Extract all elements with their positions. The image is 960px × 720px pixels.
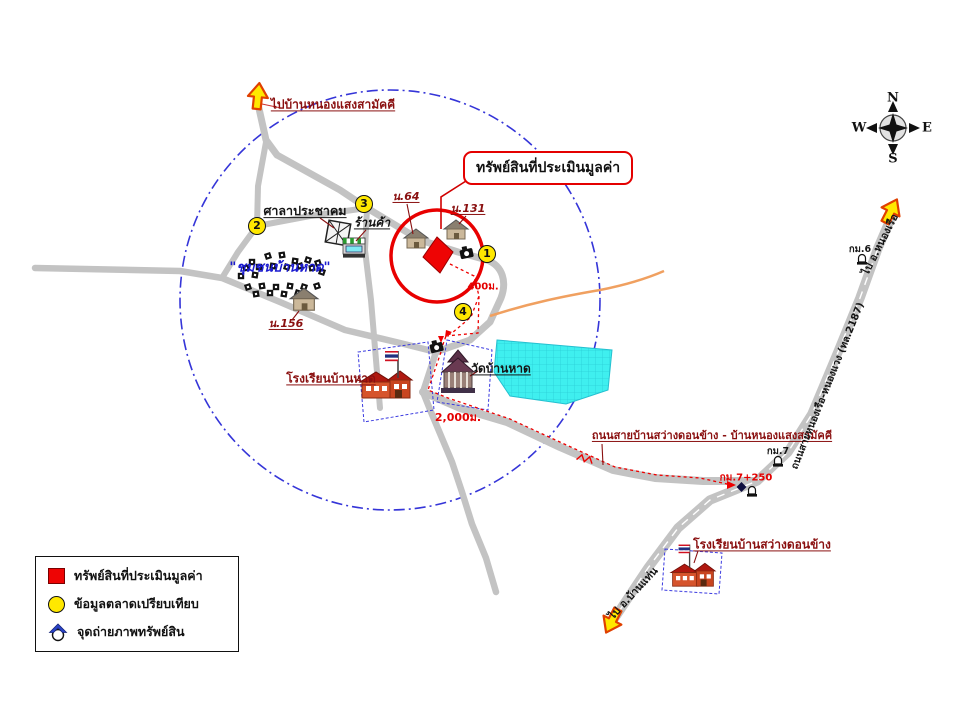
house-131-icon	[444, 220, 468, 239]
arrow-top-left	[247, 82, 270, 110]
label-school-banhat: โรงเรียนบ้านหาด	[286, 372, 376, 385]
label-school-sawang: โรงเรียนบ้านสว่างดอนข้าง	[693, 538, 831, 551]
label-house-131: น.131	[451, 203, 486, 215]
compass-w: W	[852, 121, 867, 136]
label-house-156: น.156	[269, 318, 304, 330]
km7-post-icon	[773, 457, 783, 467]
label-shop: ร้านค้า	[354, 216, 390, 229]
house-156-icon	[290, 288, 318, 310]
compass-n: N	[887, 91, 899, 106]
label-to-ban-nong-saeng: ไปบ้านหนองแสงสามัคคี	[271, 98, 395, 111]
label-km7: กม.7	[767, 447, 789, 457]
legend-camera-point-icon	[48, 623, 68, 642]
legend-item-subject: ทรัพย์สินที่ประเมินมูลค่า	[48, 566, 230, 586]
label-dist-2000m: 2,000ม.	[435, 412, 481, 424]
market-point-1: 1	[478, 245, 496, 263]
subject-property-callout: ทรัพย์สินที่ประเมินมูลค่า	[463, 151, 633, 185]
compass-s: S	[888, 152, 897, 167]
market-point-2: 2	[248, 217, 266, 235]
legend-yellow-circle-icon	[48, 596, 65, 613]
label-dist-400m: 400ม.	[467, 282, 498, 293]
km7-250-post-icon	[747, 487, 757, 497]
legend-item-market: ข้อมูลตลาดเปรียบเทียบ	[48, 594, 230, 614]
legend-market-label: ข้อมูลตลาดเปรียบเทียบ	[74, 594, 199, 614]
label-km6: กม.6	[849, 245, 871, 255]
shop-icon	[343, 238, 365, 258]
label-road-east-west: ถนนสายบ้านสว่างดอนข้าง - บ้านหนองแสงสามั…	[592, 430, 832, 442]
label-community-hall: ศาลาประชาคม	[263, 204, 346, 218]
label-house-64: น.64	[392, 191, 419, 203]
compass-rose	[866, 101, 920, 155]
legend-item-photo: จุดถ่ายภาพทรัพย์สิน	[48, 622, 230, 642]
legend-red-square-icon	[48, 568, 65, 584]
market-point-4: 4	[454, 303, 472, 321]
legend-box: ทรัพย์สินที่ประเมินมูลค่า ข้อมูลตลาดเปรี…	[35, 556, 239, 652]
market-point-3: 3	[355, 195, 373, 213]
legend-subject-label: ทรัพย์สินที่ประเมินมูลค่า	[74, 566, 203, 586]
map-canvas: ไปบ้านหนองแสงสามัคคี ทรัพย์สินที่ประเมิน…	[0, 0, 960, 720]
compass-e: E	[922, 121, 932, 136]
legend-photo-label: จุดถ่ายภาพทรัพย์สิน	[77, 622, 185, 642]
temple-icon	[441, 350, 475, 393]
label-community-name: "ชุมชนบ้านหาด"	[229, 261, 330, 276]
label-km7-250: กม.7+250	[720, 473, 773, 484]
label-temple: วัดบ้านหาด	[471, 362, 531, 375]
minor-orange-road	[490, 271, 664, 316]
